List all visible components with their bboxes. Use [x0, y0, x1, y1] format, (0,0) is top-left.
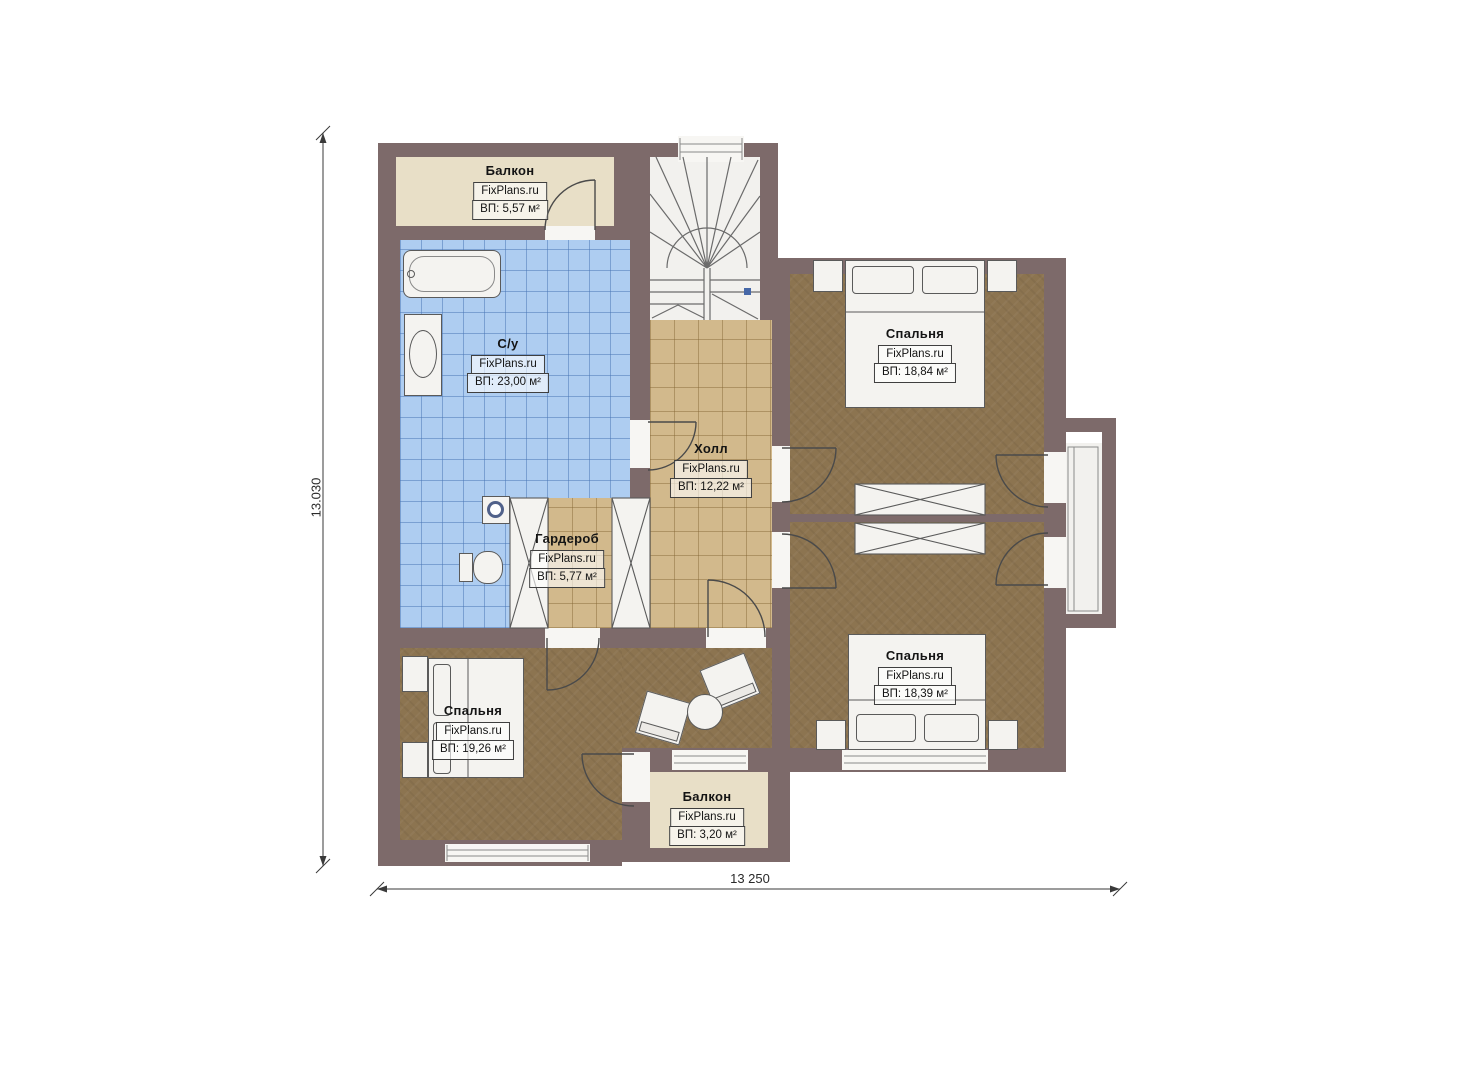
toilet-tank	[459, 553, 473, 582]
wall-bay-right	[1102, 418, 1116, 628]
room-name: Балкон	[683, 789, 732, 806]
room-name: Балкон	[486, 163, 535, 180]
room-area: ВП: 18,39 м²	[874, 685, 956, 705]
room-label-hall: Холл FixPlans.ru ВП: 12,22 м²	[670, 441, 752, 498]
watermark: FixPlans.ru	[670, 808, 744, 828]
dimension-height: 13.030	[309, 463, 324, 533]
room-name: Спальня	[886, 648, 944, 665]
watermark: FixPlans.ru	[473, 182, 547, 202]
watermark: FixPlans.ru	[878, 345, 952, 365]
nightstand	[987, 260, 1017, 292]
nightstand	[988, 720, 1018, 750]
room-label-balcony-top: Балкон FixPlans.ru ВП: 5,57 м²	[472, 163, 548, 220]
room-area: ВП: 18,84 м²	[874, 363, 956, 383]
wall-bathroom-top	[378, 226, 650, 240]
room-area: ВП: 5,77 м²	[529, 568, 605, 588]
room-label-bedroom-bottom-right: Спальня FixPlans.ru ВП: 18,39 м²	[874, 648, 956, 705]
door-opening-bedroom-br-bay	[1044, 537, 1066, 588]
wall-balcony-top	[378, 143, 632, 157]
wall-bedrooms-divider	[790, 514, 1044, 522]
round-table	[687, 694, 723, 730]
room-name: С/у	[497, 336, 518, 353]
window-stairs	[678, 136, 744, 162]
nightstand	[402, 656, 428, 692]
door-opening-hall-bedroom-tr	[772, 446, 790, 502]
door-opening-hall-bedroom-br	[772, 532, 790, 588]
door-opening-bedroom-balcony-bottom	[622, 752, 650, 802]
room-name: Гардероб	[535, 531, 599, 548]
door-opening-bathroom-hall	[630, 420, 650, 468]
toilet-bowl	[473, 551, 503, 584]
room-label-wardrobe: Гардероб FixPlans.ru ВП: 5,77 м²	[529, 531, 605, 588]
wall-balcony-bottom-front	[622, 848, 790, 862]
floor-stairs	[650, 157, 760, 320]
room-area: ВП: 3,20 м²	[669, 826, 745, 846]
pillow	[852, 266, 914, 294]
room-name: Спальня	[444, 703, 502, 720]
watermark: FixPlans.ru	[878, 667, 952, 687]
room-area: ВП: 5,57 м²	[472, 200, 548, 220]
room-name: Спальня	[886, 326, 944, 343]
wall-right-upper	[1044, 258, 1066, 442]
watermark: FixPlans.ru	[530, 550, 604, 570]
window-balcony-bottom	[672, 750, 748, 770]
wall-hall-bedrooms	[772, 274, 790, 748]
door-opening-bedroom-tr-bay	[1044, 452, 1066, 503]
nightstand	[402, 742, 428, 778]
room-area: ВП: 23,00 м²	[467, 373, 549, 393]
watermark: FixPlans.ru	[436, 722, 510, 742]
room-label-bedroom-top-right: Спальня FixPlans.ru ВП: 18,84 м²	[874, 326, 956, 383]
door-opening-balcony-top	[545, 226, 595, 240]
wall-left-exterior	[378, 143, 400, 866]
nightstand	[816, 720, 846, 750]
pillow	[922, 266, 978, 294]
pillow	[856, 714, 916, 742]
sink-basin	[409, 330, 437, 378]
door-opening-hall-bedroom-bl	[706, 628, 766, 648]
room-name: Холл	[694, 441, 728, 458]
room-area: ВП: 12,22 м²	[670, 478, 752, 498]
watermark: FixPlans.ru	[471, 355, 545, 375]
room-label-balcony-bottom: Балкон FixPlans.ru ВП: 3,20 м²	[669, 789, 745, 846]
room-label-bathroom: С/у FixPlans.ru ВП: 23,00 м²	[467, 336, 549, 393]
pillow	[924, 714, 979, 742]
room-area: ВП: 19,26 м²	[432, 740, 514, 760]
washing-machine-drum	[487, 501, 504, 518]
dimension-width: 13 250	[690, 871, 810, 886]
watermark: FixPlans.ru	[674, 460, 748, 480]
floor-bay	[1066, 443, 1102, 614]
floor-plan: Балкон FixPlans.ru ВП: 5,57 м² С/у FixPl…	[0, 0, 1474, 1080]
nightstand	[813, 260, 843, 292]
door-opening-wardrobe-bedroom	[545, 628, 600, 648]
bathtub-inner	[409, 256, 495, 292]
wall-bay-bottom	[1066, 614, 1116, 628]
room-label-bedroom-bottom-left: Спальня FixPlans.ru ВП: 19,26 м²	[432, 703, 514, 760]
window-bedroom-br	[842, 750, 988, 770]
window-bedroom-bl	[445, 844, 590, 862]
